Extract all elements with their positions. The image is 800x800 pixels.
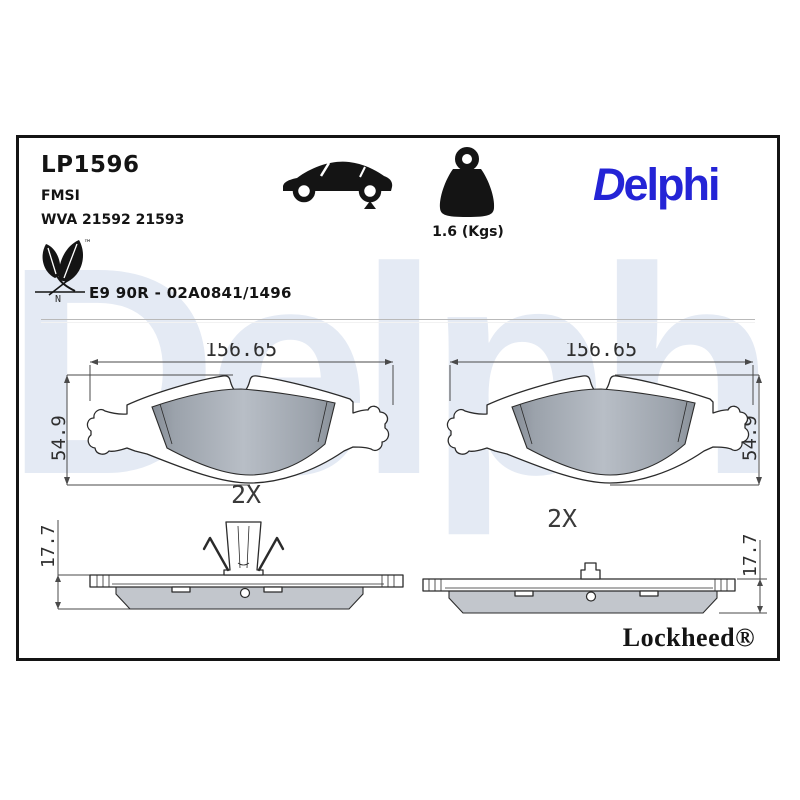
catalog-page: { "header": { "part_number": "LP1596", "… xyxy=(0,0,800,800)
part-number: LP1596 xyxy=(41,152,140,178)
side-thickness-dimension: 17.7 xyxy=(38,525,59,568)
side-view-right-drawing: 17.7 xyxy=(415,522,777,621)
lockheed-logo: Lockheed® xyxy=(623,623,755,653)
friction-material-side xyxy=(116,587,363,609)
backing-plate-side xyxy=(90,575,403,587)
divider-line xyxy=(41,319,755,323)
front-width-dimension: 156.65 xyxy=(565,343,637,361)
eco-leaf-icon: N ™ xyxy=(33,236,97,308)
front-view-right-drawing: 156.65 54.9 xyxy=(409,343,769,517)
front-height-dimension: 54.9 xyxy=(49,415,70,461)
quantity-label: 2X xyxy=(231,480,261,509)
wva-numbers: WVA 21592 21593 xyxy=(41,212,184,228)
rivet-hole xyxy=(587,592,596,601)
weight-icon xyxy=(431,146,503,226)
brand-logo: Delphi xyxy=(593,162,719,207)
side-thickness-dimension: 17.7 xyxy=(740,534,761,577)
friction-material-side xyxy=(449,591,717,613)
eco-n-label: N xyxy=(55,294,61,304)
approval-number: E9 90R - 02A0841/1496 xyxy=(89,284,292,302)
trademark-symbol: ™ xyxy=(84,239,90,249)
side-view-left-drawing: 17.7 xyxy=(34,516,414,620)
front-width-dimension: 156.65 xyxy=(205,343,277,361)
fmsi-label: FMSI xyxy=(41,188,80,204)
clip-arm-right xyxy=(259,538,283,570)
rivet-hole xyxy=(241,589,250,598)
weight-value: 1.6 (Kgs) xyxy=(413,224,523,240)
center-tab xyxy=(581,563,600,579)
clip-arm-left xyxy=(204,538,228,570)
front-view-left-drawing: 156.65 54.9 xyxy=(49,343,409,517)
backing-plate-side xyxy=(423,579,735,591)
car-rear-axle-icon xyxy=(277,146,397,214)
spring-clip xyxy=(224,522,263,575)
rear-axle-arrow-icon xyxy=(364,201,376,209)
product-sheet-frame: Delphi LP1596 FMSI WVA 21592 21593 1.6 (… xyxy=(16,135,780,661)
